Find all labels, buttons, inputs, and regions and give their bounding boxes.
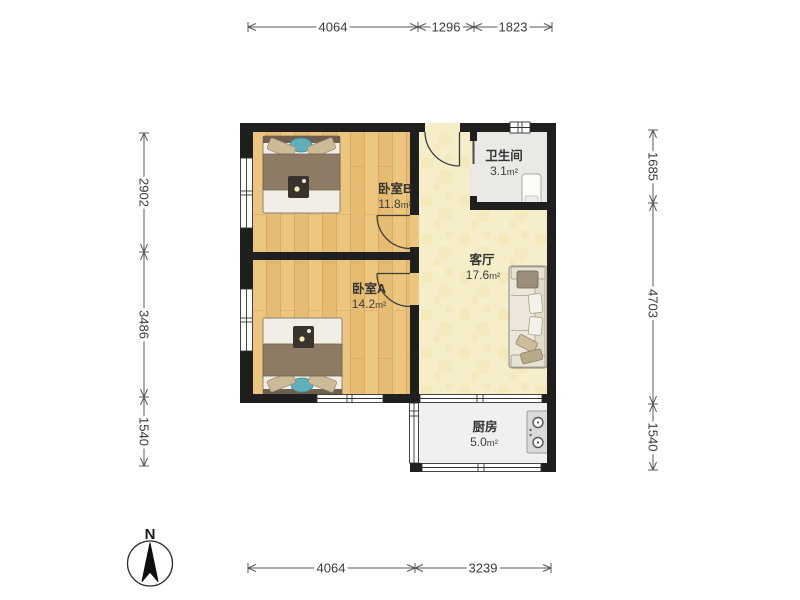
bedroom-b-area: 11.8m² [378, 197, 412, 211]
window-kitchen-west [410, 403, 419, 463]
sofa-icon [509, 266, 547, 368]
window-kitchen-south [422, 464, 541, 472]
bed-icon-bedroom-b [263, 136, 340, 213]
entry-door-opening [425, 123, 460, 132]
dim-top-1: 4064 [319, 20, 348, 35]
dim-top-2: 1296 [432, 20, 461, 35]
dimension-left: 2902 3486 1540 [137, 133, 152, 466]
window-bedroom-b-west [241, 158, 253, 228]
living-room-name: 客厅 [468, 252, 495, 267]
window-bedroom-a-south [317, 395, 383, 403]
north-arrow-icon [142, 543, 158, 582]
living-room-area: 17.6m² [466, 268, 500, 282]
cooktop-icon [527, 411, 548, 453]
dim-right-1: 1685 [646, 152, 661, 181]
bathroom-area: 3.1m² [490, 164, 518, 178]
bed-icon-bedroom-a [263, 318, 342, 396]
bedroom-a-area: 14.2m² [352, 297, 386, 311]
bedroom-b-door-opening [410, 215, 419, 247]
dim-bottom-1: 4064 [317, 561, 346, 576]
bedroom-a-name: 卧室A [352, 281, 386, 296]
kitchen-name: 厨房 [472, 419, 497, 434]
dim-right-3: 1540 [646, 423, 661, 452]
dimension-bottom: 4064 3239 [248, 561, 551, 576]
floorplan-drawing: 卧室B 11.8m² 卧室A 14.2m² 客厅 17.6m² 卫生间 3.1m… [0, 0, 800, 600]
floorplan-page: 卧室B 11.8m² 卧室A 14.2m² 客厅 17.6m² 卫生间 3.1m… [0, 0, 800, 600]
dim-left-2: 3486 [137, 310, 152, 339]
window-living-kitchen-boundary [420, 395, 542, 403]
dim-left-1: 2902 [137, 178, 152, 207]
compass: N [128, 526, 173, 586]
kitchen-area: 5.0m² [470, 435, 498, 449]
dim-top-3: 1823 [499, 20, 528, 35]
dimension-right: 1685 4703 1540 [646, 130, 661, 470]
dim-left-3: 1540 [137, 417, 152, 446]
window-bedroom-a-west [241, 289, 253, 351]
dim-right-2: 4703 [646, 289, 661, 318]
window-bathroom-north [510, 122, 530, 133]
bathroom-name: 卫生间 [485, 148, 523, 163]
dimension-top: 4064 1296 1823 [248, 20, 552, 35]
bedroom-b-name: 卧室B [378, 181, 412, 196]
bedroom-a-door-opening [410, 273, 419, 305]
dim-bottom-2: 3239 [469, 561, 498, 576]
bathroom-door-opening [470, 164, 477, 196]
